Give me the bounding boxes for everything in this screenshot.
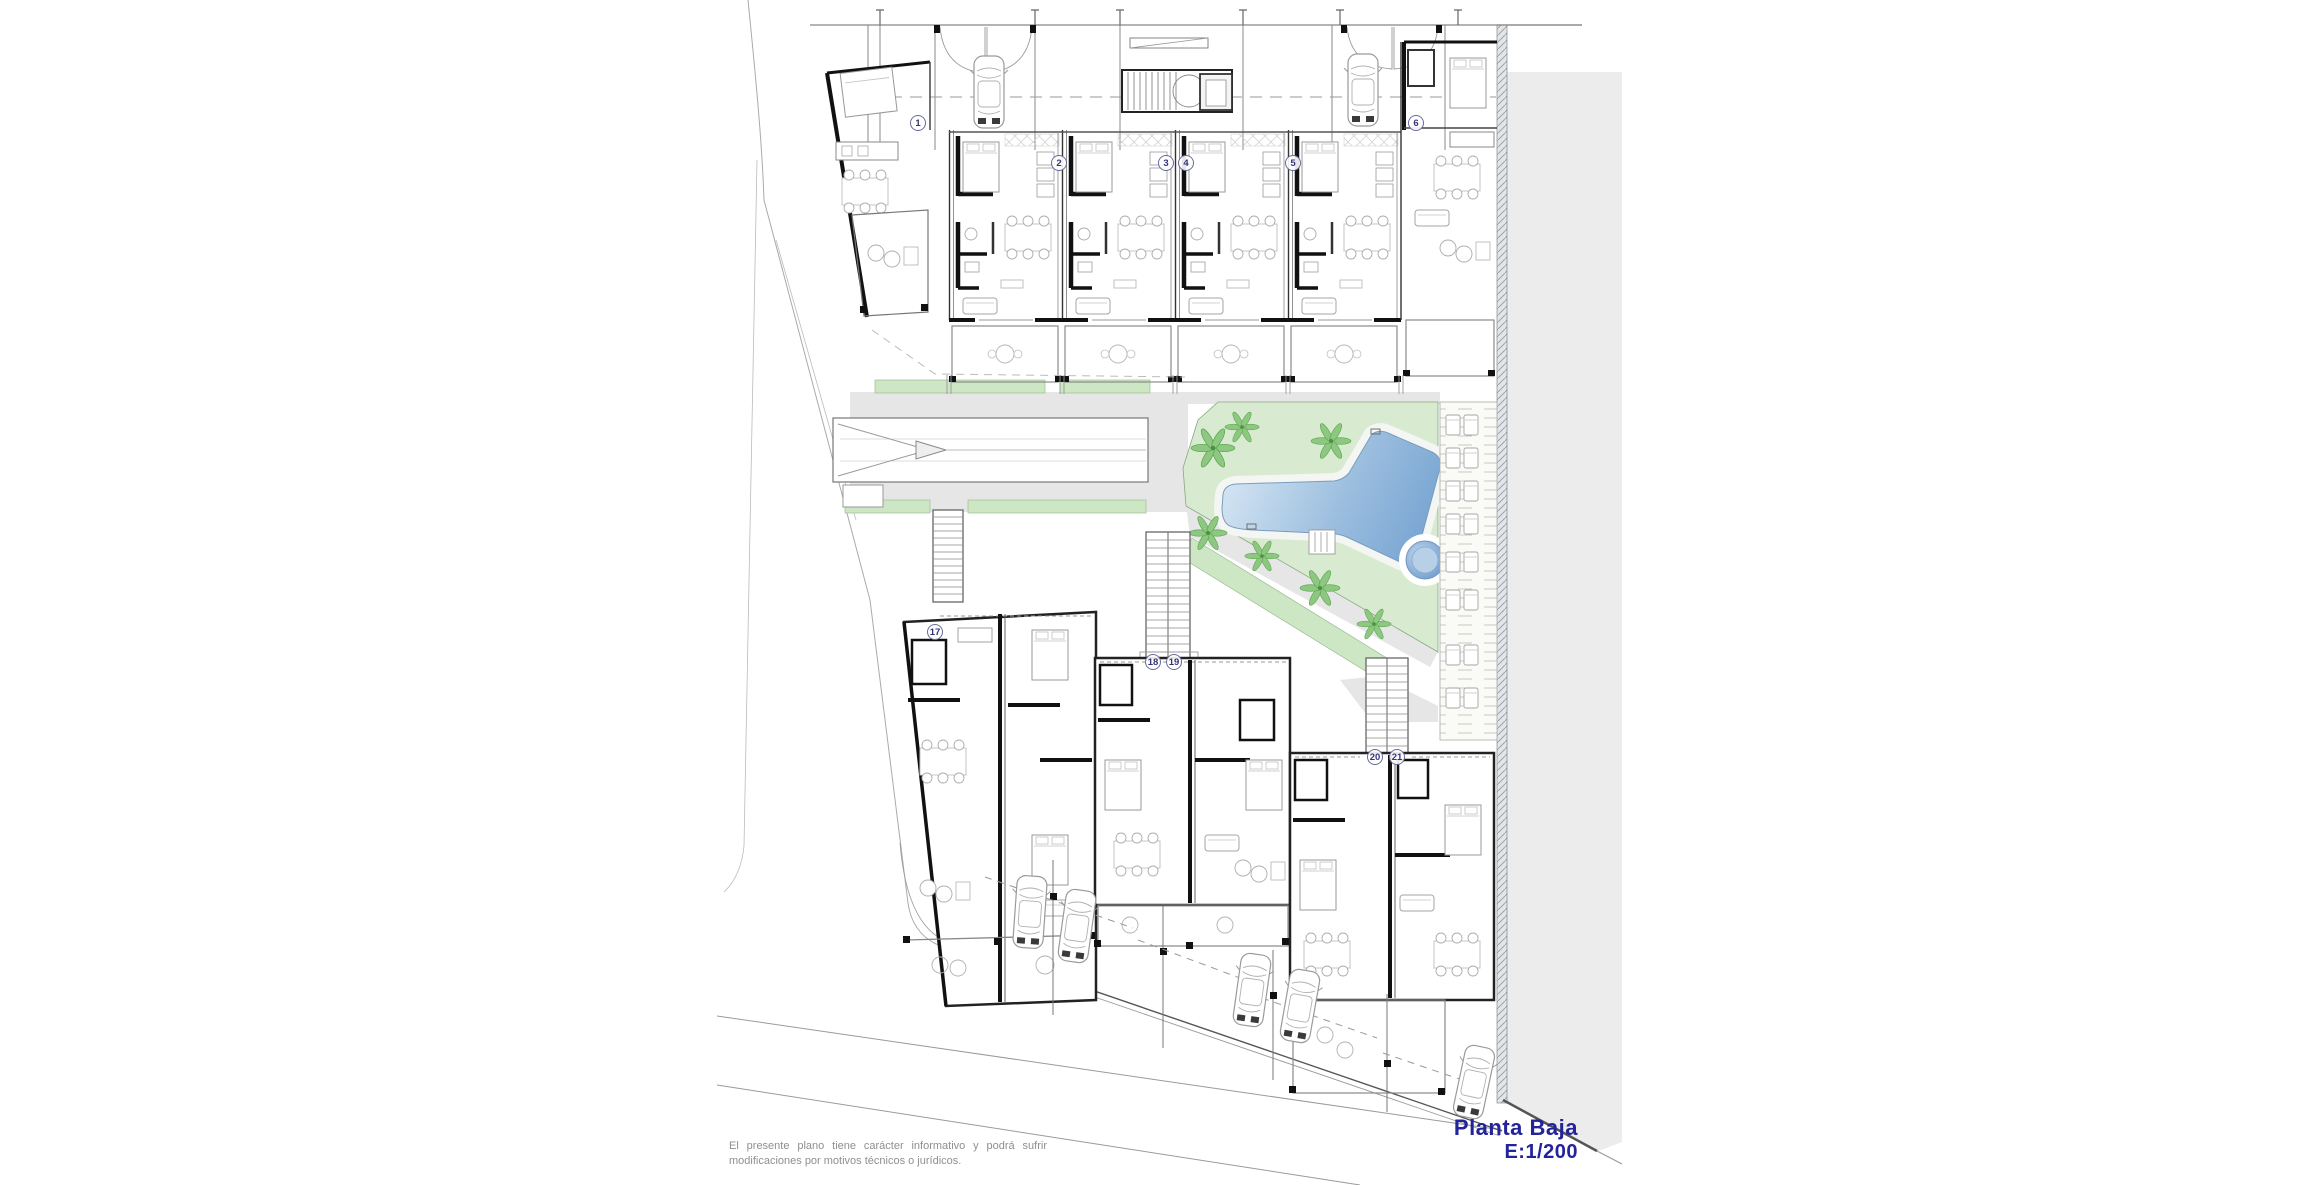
unit-marker: 18 bbox=[1145, 654, 1161, 670]
unit-marker: 6 bbox=[1408, 115, 1424, 131]
unit-markers-layer: 1234561718192021 bbox=[0, 0, 2304, 1185]
unit-marker: 5 bbox=[1285, 155, 1301, 171]
unit-marker: 21 bbox=[1389, 749, 1405, 765]
disclaimer-text: El presente plano tiene carácter informa… bbox=[729, 1139, 1047, 1169]
unit-marker: 2 bbox=[1051, 155, 1067, 171]
unit-marker: 1 bbox=[910, 115, 926, 131]
unit-marker: 3 bbox=[1158, 155, 1174, 171]
unit-marker: 19 bbox=[1166, 654, 1182, 670]
unit-marker: 17 bbox=[927, 624, 943, 640]
floor-plan-page: 1234561718192021 Planta Baja E:1/200 El … bbox=[0, 0, 2304, 1185]
plan-title: Planta Baja bbox=[1318, 1116, 1578, 1141]
unit-marker: 4 bbox=[1178, 155, 1194, 171]
title-block: Planta Baja E:1/200 bbox=[1318, 1116, 1578, 1163]
plan-scale: E:1/200 bbox=[1318, 1141, 1578, 1163]
unit-marker: 20 bbox=[1367, 749, 1383, 765]
